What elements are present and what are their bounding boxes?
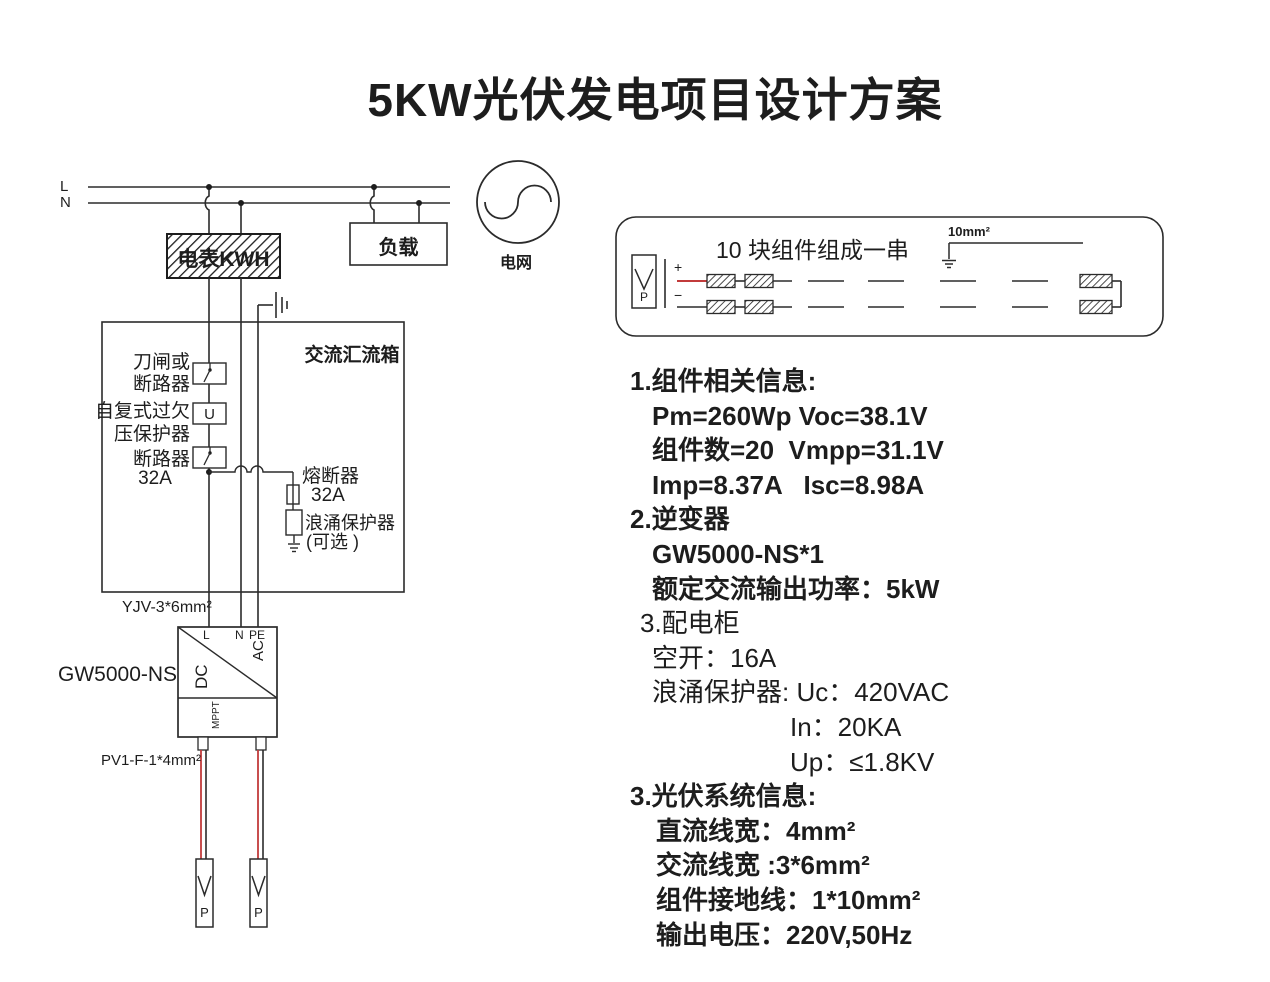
meter-label: 电表KWH	[167, 243, 280, 273]
ac-cable-label: YJV-3*6mm²	[122, 599, 212, 617]
breaker-rating-label: 32A	[125, 468, 185, 490]
grid-symbol	[477, 161, 559, 243]
info-line: 输出电压：220V,50Hz	[656, 918, 1230, 953]
info-line: In：20KA	[790, 710, 1230, 745]
pv-connector-right-label: P	[250, 905, 267, 920]
terminal-n-label: N	[235, 628, 244, 642]
surge-protector-symbol	[286, 510, 302, 535]
load-label: 负载	[350, 231, 447, 260]
knife-switch-symbol	[193, 363, 226, 384]
knife-switch-label-line1: 刀闸或	[98, 352, 190, 374]
info-line: 2.逆变器	[630, 502, 1230, 537]
pe-earth-symbol	[258, 292, 287, 318]
uvp-symbol: U	[193, 406, 226, 423]
spd-branch	[206, 466, 302, 552]
inverter-model-label: GW5000-NS	[58, 663, 177, 687]
info-line: 3.配电柜	[640, 606, 1230, 641]
breaker-symbol	[193, 447, 226, 468]
info-line: Imp=8.37A Isc=8.98A	[652, 468, 1230, 503]
page-title: 5KW光伏发电项目设计方案	[0, 64, 1270, 130]
string-ground-label: 10mm²	[948, 224, 990, 239]
dc-wires	[201, 750, 263, 859]
info-line: 浪涌保护器: Uc：420VAC	[652, 675, 1230, 710]
string-links	[735, 281, 1121, 307]
fuse-rating-label: 32A	[311, 485, 345, 507]
knife-switch-label-line2: 断路器	[98, 374, 190, 396]
string-connector-label: P	[632, 290, 656, 304]
fuse-label: 熔断器	[302, 461, 359, 488]
mppt-label: MPPT	[211, 701, 222, 729]
dc-cable-label: PV1-F-1*4mm²	[101, 752, 201, 769]
string-ground-symbol	[942, 243, 1083, 268]
info-line: Pm=260Wp Voc=38.1V	[652, 399, 1230, 434]
info-line: 交流线宽 :3*6mm²	[656, 848, 1230, 883]
spd-optional-label: (可选 )	[306, 528, 359, 554]
info-line: 额定交流输出功率：5kW	[652, 572, 1230, 607]
info-line: Up：≤1.8KV	[790, 745, 1230, 780]
info-line: 组件接地线：1*10mm²	[656, 883, 1230, 918]
info-line: 组件数=20 Vmpp=31.1V	[652, 433, 1230, 468]
knife-switch-label: 刀闸或 断路器	[98, 352, 190, 396]
ac-side-label: AC	[250, 640, 267, 661]
uvp-label-line1: 自复式过欠	[94, 400, 190, 423]
grid-label: 电网	[478, 249, 554, 273]
terminal-l-label: L	[203, 628, 210, 642]
breaker-label: 断路器	[98, 444, 190, 471]
pv-connector-left-label: P	[196, 905, 213, 920]
info-line: GW5000-NS*1	[652, 537, 1230, 572]
minus-label: −	[674, 287, 682, 303]
combiner-title: 交流汇流箱	[300, 340, 404, 367]
pv-module-symbols	[707, 275, 1112, 314]
info-line: 空开：16A	[652, 641, 1230, 676]
info-panel: 1.组件相关信息:Pm=260Wp Voc=38.1V组件数=20 Vmpp=3…	[630, 364, 1230, 952]
dc-side-label: DC	[192, 664, 212, 689]
n-line-label: N	[60, 194, 71, 211]
l-line-label: L	[60, 178, 68, 195]
plus-label: +	[674, 259, 682, 275]
info-line: 3.光伏系统信息:	[630, 779, 1230, 814]
info-line: 1.组件相关信息:	[630, 364, 1230, 399]
uvp-label-line2: 压保护器	[94, 423, 190, 446]
string-title: 10 块组件组成一串	[716, 231, 909, 265]
uvp-label: 自复式过欠 压保护器	[94, 400, 190, 446]
info-line: 直流线宽：4mm²	[656, 814, 1230, 849]
